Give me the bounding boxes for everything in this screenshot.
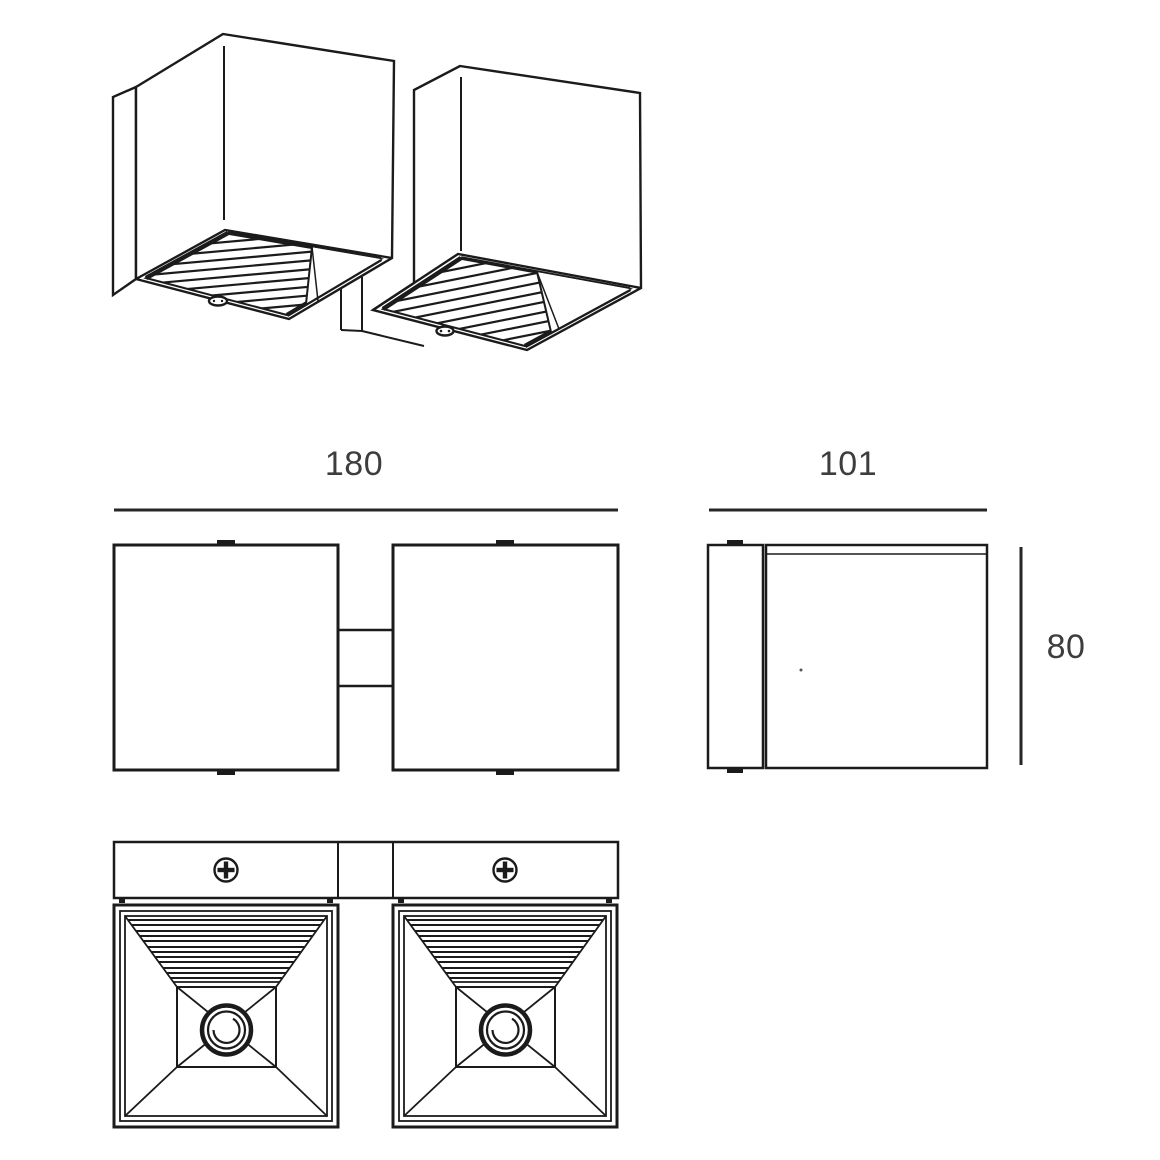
tab	[398, 898, 404, 903]
dimension-depth-label: 101	[819, 445, 877, 483]
tab	[217, 770, 235, 775]
side-view: 101 80	[708, 445, 1085, 773]
mounting-plate-edge	[113, 87, 136, 295]
tab	[727, 768, 743, 773]
tab	[606, 898, 612, 903]
dimension-width-label: 180	[325, 445, 383, 483]
iso-right-cube	[370, 66, 650, 367]
bottom-left-aperture	[114, 905, 338, 1127]
tab	[119, 898, 125, 903]
bottom-view	[114, 842, 618, 1127]
tab	[496, 770, 514, 775]
set-screw-knob	[209, 297, 227, 306]
surface-mark	[800, 669, 803, 672]
isometric-view	[113, 34, 650, 367]
tab	[727, 540, 743, 545]
side-cube-body	[766, 545, 987, 768]
technical-dimension-drawing: 180 101 80	[0, 0, 1160, 1160]
phillips-screw-left	[215, 859, 238, 882]
front-right-cube	[393, 545, 618, 770]
front-left-cube	[114, 545, 338, 770]
mounting-plate-strip	[114, 842, 618, 898]
bottom-right-aperture	[393, 905, 617, 1127]
side-mounting-plate	[708, 545, 763, 768]
front-connector-bridge	[338, 630, 393, 686]
phillips-screw-right	[494, 859, 517, 882]
dimension-height-label: 80	[1047, 628, 1086, 666]
iso-left-cube	[113, 34, 394, 321]
tab	[496, 540, 514, 545]
tab	[217, 540, 235, 545]
set-screw-knob	[437, 327, 454, 336]
front-view: 180	[114, 445, 618, 775]
tab	[327, 898, 333, 903]
